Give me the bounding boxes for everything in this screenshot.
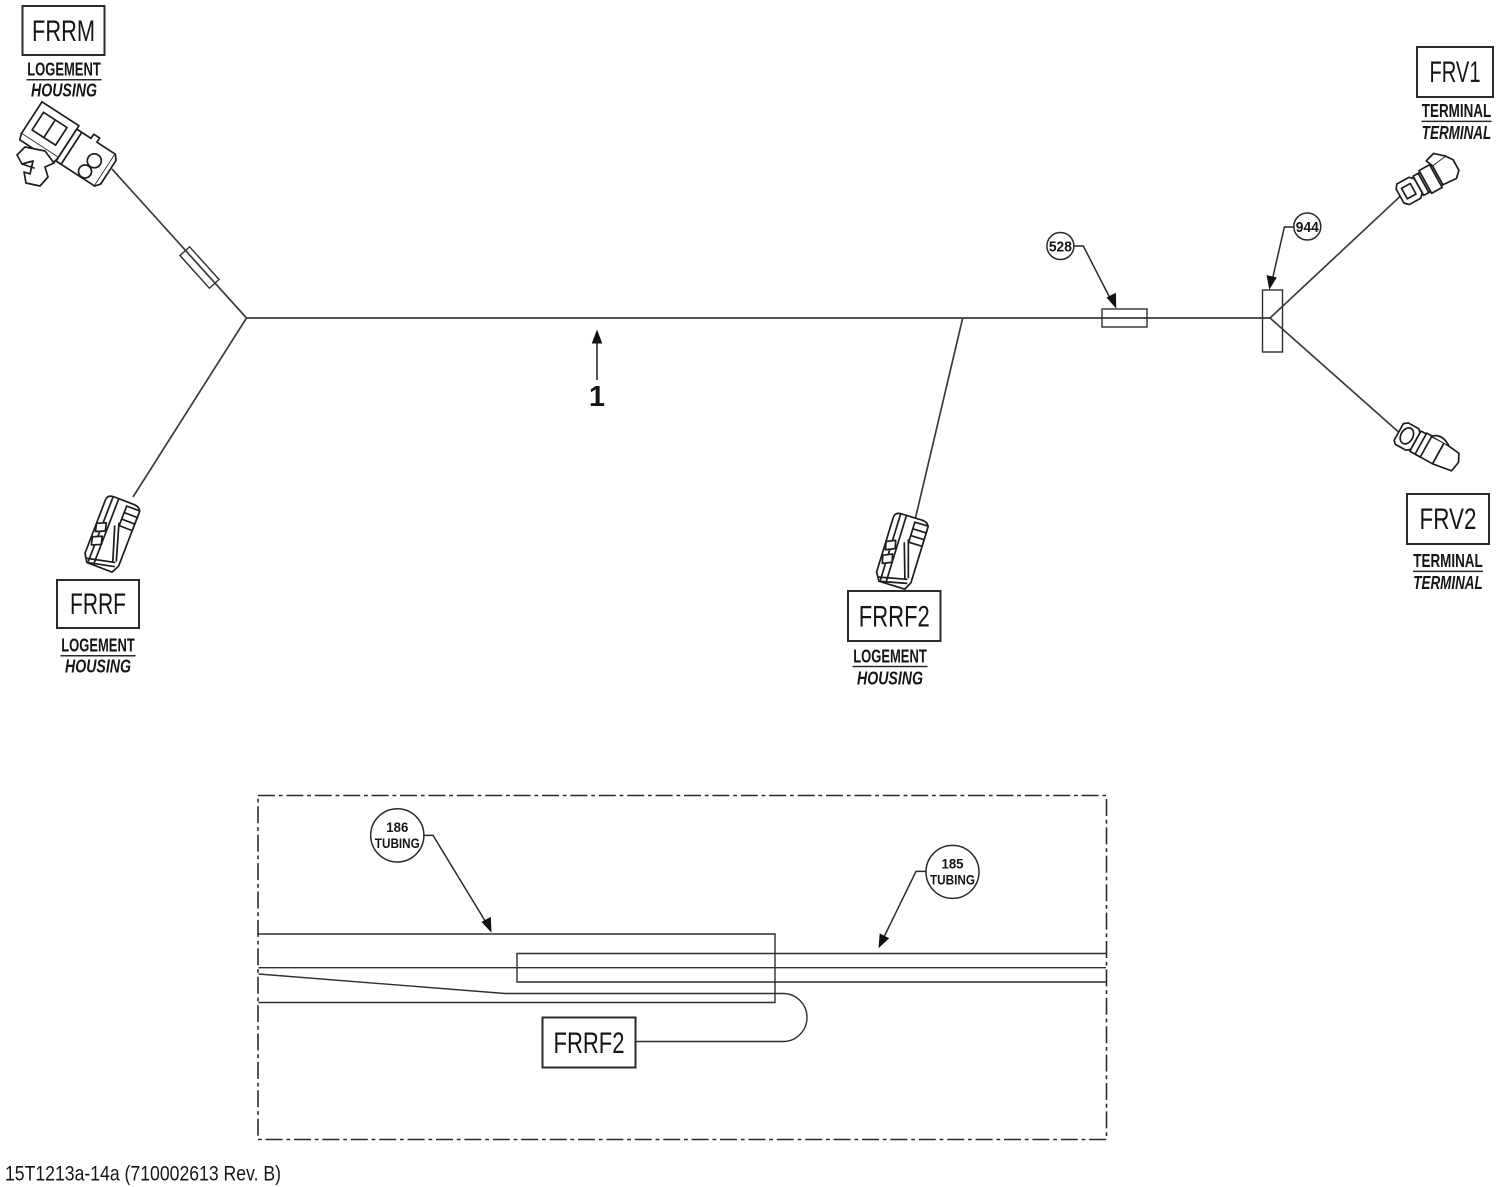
svg-text:TERMINAL: TERMINAL (1413, 573, 1483, 593)
svg-text:186: 186 (386, 820, 408, 835)
svg-text:528: 528 (1049, 238, 1072, 255)
svg-text:15T1213a-14a (710002613 Rev. B: 15T1213a-14a (710002613 Rev. B) (5, 1163, 281, 1186)
svg-text:HOUSING: HOUSING (857, 669, 923, 689)
svg-text:FRRF: FRRF (70, 588, 126, 621)
svg-text:LOGEMENT: LOGEMENT (61, 636, 135, 656)
svg-text:TUBING: TUBING (930, 873, 975, 888)
svg-text:LOGEMENT: LOGEMENT (853, 647, 927, 667)
svg-text:TUBING: TUBING (375, 836, 420, 851)
svg-text:FRRF2: FRRF2 (859, 601, 930, 634)
svg-text:1: 1 (589, 381, 605, 413)
svg-text:HOUSING: HOUSING (65, 657, 131, 677)
svg-text:HOUSING: HOUSING (31, 81, 97, 101)
svg-text:FRRF2: FRRF2 (554, 1027, 625, 1060)
svg-text:FRV1: FRV1 (1430, 56, 1481, 89)
svg-text:FRV2: FRV2 (1420, 503, 1477, 536)
svg-text:TERMINAL: TERMINAL (1422, 123, 1492, 143)
svg-text:FRRM: FRRM (32, 15, 95, 48)
svg-text:LOGEMENT: LOGEMENT (27, 60, 101, 80)
svg-text:TERMINAL: TERMINAL (1422, 101, 1492, 121)
svg-text:185: 185 (942, 857, 964, 872)
svg-text:944: 944 (1296, 219, 1320, 236)
svg-text:TERMINAL: TERMINAL (1413, 551, 1483, 571)
